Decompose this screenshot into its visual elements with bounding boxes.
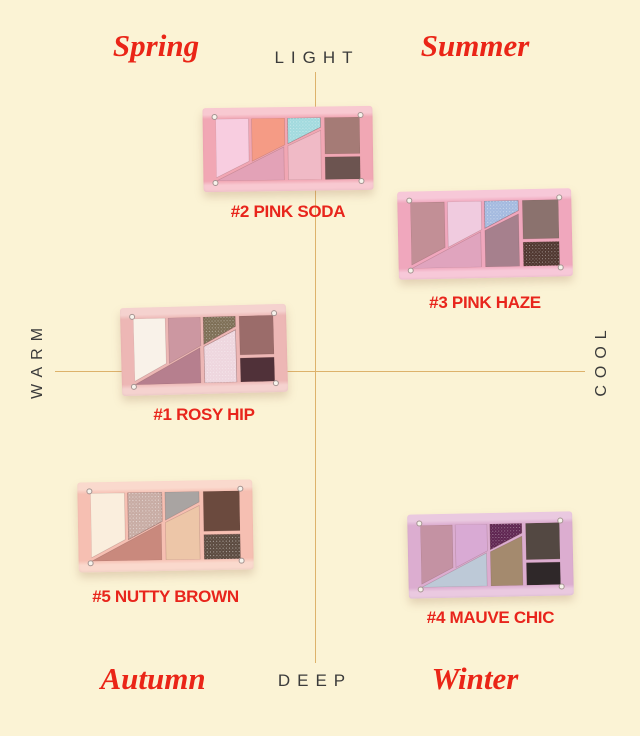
glitter-overlay [204,534,241,559]
swatch-right-top [522,199,559,238]
quadrant-label-autumn: Autumn [63,661,243,697]
screw-icon [406,198,412,204]
palette-mauve-chic [407,511,574,598]
palette-swatches [420,523,560,588]
screw-icon [131,384,137,390]
palette-pink-soda [202,106,373,192]
palette-rosy-hip [120,304,288,396]
screw-icon [408,268,414,274]
palette-swatches [90,491,240,562]
screw-icon [239,558,245,564]
swatch-right-top [526,523,561,560]
screw-icon [273,380,279,386]
palette-swatches [410,199,559,268]
palette-swatches [133,315,275,385]
screw-icon [271,310,277,316]
screw-icon [237,486,243,492]
screw-icon [212,114,218,120]
quadrant-label-winter: Winter [385,661,565,697]
palette-label: #1 ROSY HIP [121,405,287,425]
seasonal-palette-quadrant-map: LIGHT DEEP WARM COOL Spring Summer Autum… [0,0,640,736]
swatch-right-bottom [240,357,275,382]
palette-label: #5 NUTTY BROWN [78,587,253,607]
swatch-right-top [203,491,240,531]
swatch-right-top [239,315,274,355]
screw-icon [358,178,364,184]
palette-nutty-brown [77,479,254,572]
palette-label: #3 PINK HAZE [398,293,572,313]
glitter-overlay [523,242,559,267]
swatch-right-bottom [526,562,560,585]
screw-icon [86,488,92,494]
swatch-right-top [325,117,360,154]
palette-swatches [216,117,361,181]
screw-icon [556,194,562,200]
palette-pink-haze [397,188,573,280]
axis-label-cool: COOL [593,300,611,420]
screw-icon [88,560,94,566]
screw-icon [212,180,218,186]
screw-icon [129,314,135,320]
palette-label: #4 MAUVE CHIC [408,608,573,628]
swatch-right-bottom [325,157,360,180]
quadrant-label-summer: Summer [385,28,565,64]
axis-label-warm: WARM [29,300,47,420]
quadrant-label-spring: Spring [66,28,246,64]
screw-icon [418,586,424,592]
screw-icon [416,520,422,526]
palette-label: #2 PINK SODA [203,202,373,222]
axis-label-deep: DEEP [235,671,395,691]
screw-icon [558,264,564,270]
screw-icon [559,583,565,589]
screw-icon [357,112,363,118]
axis-label-light: LIGHT [237,48,397,68]
screw-icon [557,517,563,523]
